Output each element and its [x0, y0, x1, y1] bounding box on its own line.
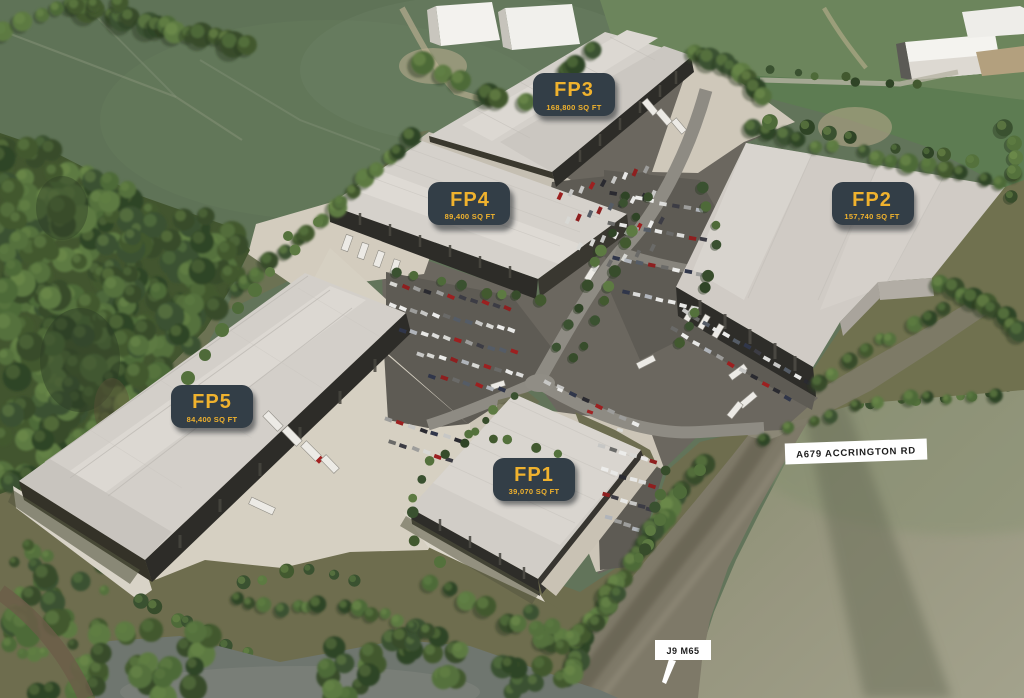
svg-text:168,800 SQ FT: 168,800 SQ FT: [546, 103, 601, 112]
svg-text:157,740 SQ FT: 157,740 SQ FT: [844, 212, 899, 221]
svg-text:FP4: FP4: [450, 189, 490, 211]
svg-text:FP5: FP5: [192, 391, 232, 413]
svg-text:84,400 SQ FT: 84,400 SQ FT: [187, 415, 238, 424]
svg-text:FP3: FP3: [554, 79, 594, 101]
svg-text:89,400 SQ FT: 89,400 SQ FT: [445, 212, 496, 221]
svg-text:FP2: FP2: [852, 189, 892, 211]
svg-text:FP1: FP1: [514, 464, 554, 486]
svg-text:39,070 SQ FT: 39,070 SQ FT: [509, 487, 560, 496]
svg-text:J9 M65: J9 M65: [666, 646, 699, 656]
